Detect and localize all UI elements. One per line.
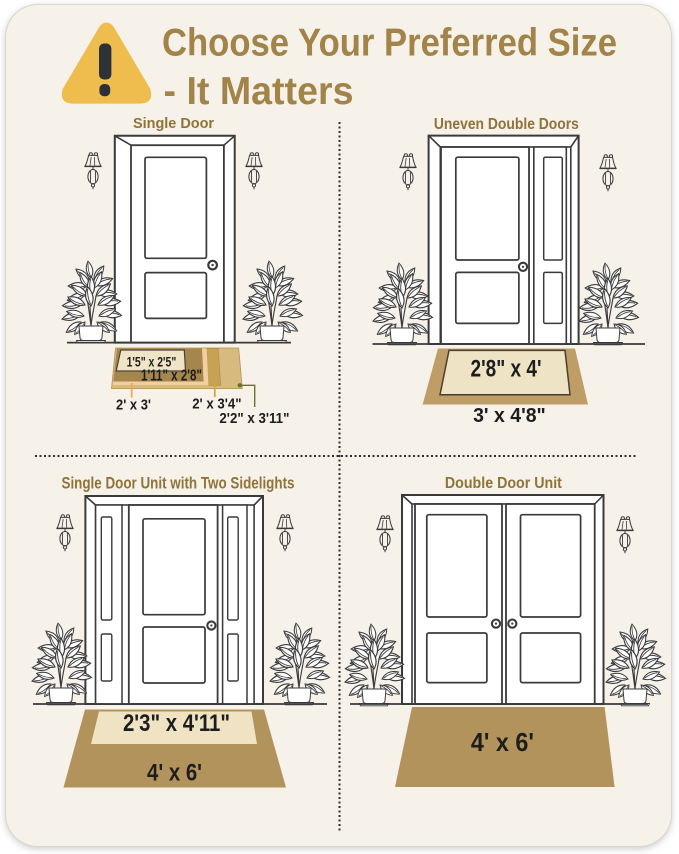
svg-text:3' x 4'8": 3' x 4'8" <box>473 405 546 427</box>
svg-text:2' x 3'4": 2' x 3'4" <box>192 396 241 412</box>
svg-text:4' x 6': 4' x 6' <box>471 727 534 757</box>
svg-text:Single Door Unit with Two Side: Single Door Unit with Two Sidelights <box>62 475 295 493</box>
svg-text:2'8" x 4': 2'8" x 4' <box>471 355 542 382</box>
svg-text:2'3" x 4'11": 2'3" x 4'11" <box>123 710 230 737</box>
svg-text:2' x 3': 2' x 3' <box>116 398 151 414</box>
svg-text:- It Matters: - It Matters <box>164 70 354 113</box>
svg-text:Single Door: Single Door <box>133 115 214 132</box>
svg-text:2'2" x 3'11": 2'2" x 3'11" <box>219 411 289 427</box>
svg-text:Uneven Double Doors: Uneven Double Doors <box>434 116 579 133</box>
svg-text:Double Door Unit: Double Door Unit <box>445 475 563 492</box>
svg-text:Choose Your Preferred Size: Choose Your Preferred Size <box>162 22 617 65</box>
svg-text:1'11" x 2'8": 1'11" x 2'8" <box>141 368 202 385</box>
svg-text:4' x 6': 4' x 6' <box>147 759 202 786</box>
